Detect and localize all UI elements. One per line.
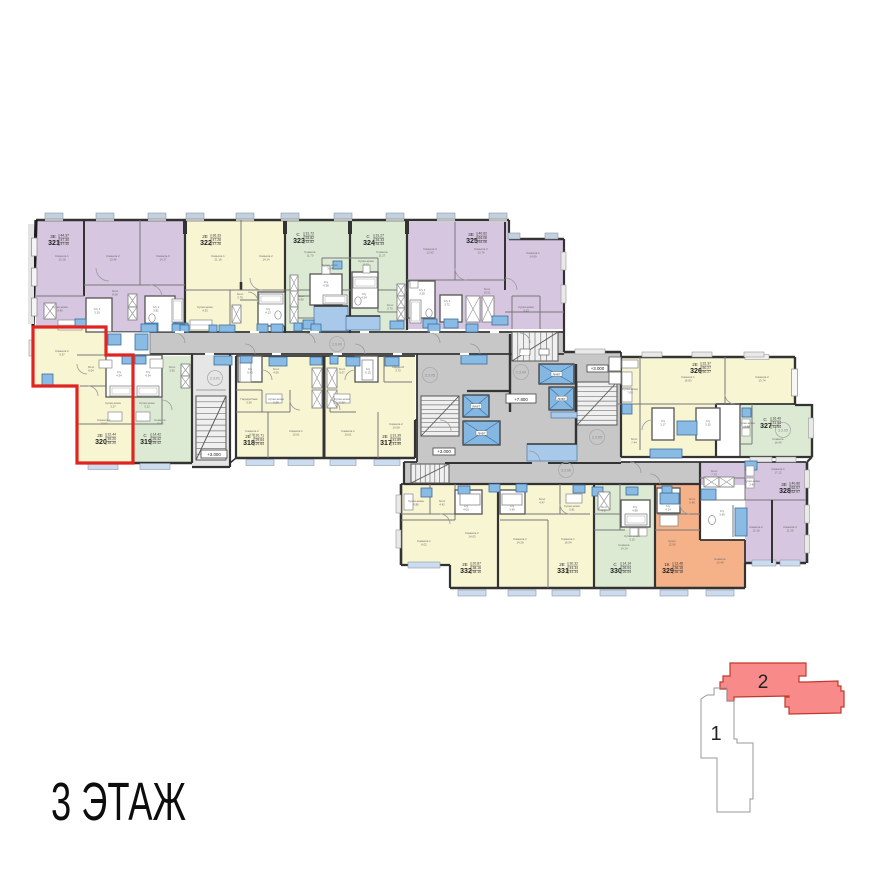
svg-text:10.61: 10.61 bbox=[345, 433, 352, 437]
svg-text:8.06: 8.06 bbox=[112, 293, 118, 297]
svg-text:6.45: 6.45 bbox=[57, 309, 63, 313]
svg-text:4.00: 4.00 bbox=[463, 508, 469, 512]
svg-text:4.34: 4.34 bbox=[116, 374, 122, 378]
svg-text:3.72: 3.72 bbox=[444, 303, 450, 307]
svg-text:322: 322 bbox=[200, 240, 212, 247]
svg-text:5.07: 5.07 bbox=[339, 371, 345, 375]
svg-text:4.34: 4.34 bbox=[145, 374, 151, 378]
svg-text:62.07: 62.07 bbox=[792, 490, 801, 494]
svg-text:3.19: 3.19 bbox=[94, 311, 100, 315]
svg-text:47.26: 47.26 bbox=[213, 242, 222, 246]
svg-text:318: 318 bbox=[243, 440, 255, 447]
svg-text:3.96: 3.96 bbox=[509, 508, 515, 512]
svg-text:4.24: 4.24 bbox=[361, 296, 367, 300]
svg-text:325: 325 bbox=[466, 238, 478, 245]
svg-text:16.04: 16.04 bbox=[565, 541, 572, 545]
svg-text:4.48: 4.48 bbox=[744, 425, 750, 429]
svg-text:3.79: 3.79 bbox=[237, 296, 243, 300]
svg-text:14.03: 14.03 bbox=[469, 535, 476, 539]
svg-text:+3.000: +3.000 bbox=[437, 449, 451, 454]
svg-text:39.20: 39.20 bbox=[108, 441, 117, 445]
svg-text:ЛИФТ: ЛИФТ bbox=[557, 397, 565, 401]
svg-text:3.15: 3.15 bbox=[629, 538, 635, 542]
svg-text:10.51: 10.51 bbox=[484, 291, 491, 295]
svg-text:2Е: 2Е bbox=[97, 433, 103, 438]
svg-text:25.42: 25.42 bbox=[153, 441, 162, 445]
svg-text:2.3.05: 2.3.05 bbox=[425, 374, 435, 378]
svg-text:2Е: 2Е bbox=[462, 562, 468, 567]
svg-text:11.27: 11.27 bbox=[379, 254, 386, 258]
svg-text:6.15: 6.15 bbox=[365, 371, 371, 375]
svg-text:29.64: 29.64 bbox=[256, 442, 265, 446]
svg-text:31.54: 31.54 bbox=[773, 425, 782, 429]
svg-text:3.15: 3.15 bbox=[705, 423, 711, 427]
svg-text:9.37: 9.37 bbox=[59, 353, 65, 357]
svg-text:4.33: 4.33 bbox=[202, 309, 208, 313]
svg-text:5.40: 5.40 bbox=[247, 371, 253, 375]
svg-text:324: 324 bbox=[363, 240, 375, 247]
svg-text:2: 2 bbox=[758, 672, 769, 693]
svg-text:26.04: 26.04 bbox=[623, 570, 632, 574]
svg-text:10.61: 10.61 bbox=[293, 433, 300, 437]
svg-text:2.9.00: 2.9.00 bbox=[332, 343, 342, 347]
svg-text:ЛИФТ: ЛИФТ bbox=[472, 404, 480, 408]
svg-text:5.28: 5.28 bbox=[419, 292, 425, 296]
svg-text:33.82: 33.82 bbox=[306, 240, 315, 244]
svg-text:3.36: 3.36 bbox=[246, 401, 252, 405]
svg-text:4.24: 4.24 bbox=[665, 508, 671, 512]
svg-text:7.79: 7.79 bbox=[711, 473, 717, 477]
svg-text:13.76: 13.76 bbox=[478, 251, 485, 255]
svg-text:3.48: 3.48 bbox=[749, 483, 755, 487]
svg-text:+3.000: +3.000 bbox=[207, 452, 221, 457]
svg-text:17.12: 17.12 bbox=[775, 471, 782, 475]
svg-text:3.12: 3.12 bbox=[363, 263, 369, 267]
svg-text:12.93: 12.93 bbox=[427, 251, 434, 255]
svg-text:13.48: 13.48 bbox=[717, 561, 724, 565]
svg-text:12.16: 12.16 bbox=[753, 529, 760, 533]
svg-text:323: 323 bbox=[293, 238, 305, 245]
svg-text:1: 1 bbox=[710, 723, 721, 745]
svg-text:3.17: 3.17 bbox=[660, 423, 666, 427]
svg-text:4.80: 4.80 bbox=[298, 298, 304, 302]
svg-text:2.3.01: 2.3.01 bbox=[210, 377, 220, 381]
svg-text:16.40: 16.40 bbox=[775, 441, 782, 445]
svg-text:16.83: 16.83 bbox=[685, 379, 692, 383]
svg-text:3Е: 3Е bbox=[468, 232, 474, 237]
svg-text:14.14: 14.14 bbox=[621, 547, 628, 551]
svg-text:47.30: 47.30 bbox=[61, 242, 70, 246]
svg-text:1К: 1К bbox=[664, 562, 670, 567]
svg-text:3.04: 3.04 bbox=[327, 267, 333, 271]
svg-text:3Е: 3Е bbox=[50, 234, 56, 239]
svg-text:3.13: 3.13 bbox=[523, 309, 529, 313]
svg-text:2Е: 2Е bbox=[382, 434, 388, 439]
svg-text:21.18: 21.18 bbox=[215, 258, 222, 262]
svg-text:5.48: 5.48 bbox=[689, 501, 695, 505]
svg-text:3Е: 3Е bbox=[781, 482, 787, 487]
svg-text:7.44: 7.44 bbox=[631, 441, 637, 445]
svg-text:ЛИФТ: ЛИФТ bbox=[552, 372, 560, 376]
svg-text:319: 319 bbox=[140, 439, 152, 446]
svg-text:+7.800: +7.800 bbox=[514, 397, 528, 402]
svg-text:330: 330 bbox=[610, 568, 622, 575]
svg-text:3.3.06: 3.3.06 bbox=[561, 469, 571, 473]
svg-text:3.55: 3.55 bbox=[169, 369, 175, 373]
svg-text:2.3.05: 2.3.05 bbox=[592, 436, 602, 440]
svg-text:317: 317 bbox=[380, 440, 392, 447]
svg-text:4.47: 4.47 bbox=[539, 501, 545, 505]
svg-text:41.89: 41.89 bbox=[393, 442, 402, 446]
svg-text:2Е: 2Е bbox=[202, 234, 208, 239]
svg-text:6.86: 6.86 bbox=[413, 503, 419, 507]
svg-text:14.99: 14.99 bbox=[530, 255, 537, 259]
svg-text:328: 328 bbox=[779, 488, 791, 495]
svg-text:3.12: 3.12 bbox=[144, 405, 150, 409]
svg-text:327: 327 bbox=[760, 423, 772, 430]
svg-text:329: 329 bbox=[662, 568, 674, 575]
svg-text:14.42: 14.42 bbox=[157, 422, 164, 426]
svg-text:4.42: 4.42 bbox=[439, 503, 445, 507]
svg-text:3 ЭТАЖ: 3 ЭТАЖ bbox=[51, 772, 186, 832]
svg-text:13.07: 13.07 bbox=[101, 422, 108, 426]
svg-text:34.33: 34.33 bbox=[376, 242, 385, 246]
svg-text:4.98: 4.98 bbox=[632, 509, 638, 513]
svg-text:332: 332 bbox=[460, 568, 472, 575]
svg-text:3.70: 3.70 bbox=[395, 369, 401, 373]
svg-text:11.39: 11.39 bbox=[787, 529, 794, 533]
svg-text:2Е: 2Е bbox=[559, 562, 565, 567]
svg-text:14.14: 14.14 bbox=[263, 258, 270, 262]
svg-text:3.96: 3.96 bbox=[719, 513, 725, 517]
svg-text:13.18: 13.18 bbox=[59, 258, 66, 262]
svg-text:331: 331 bbox=[557, 568, 569, 575]
svg-text:10.58: 10.58 bbox=[393, 426, 400, 430]
svg-text:5.81: 5.81 bbox=[569, 508, 575, 512]
svg-text:14.28: 14.28 bbox=[517, 541, 524, 545]
svg-text:8.02: 8.02 bbox=[421, 543, 427, 547]
svg-text:3.3.05: 3.3.05 bbox=[778, 429, 788, 433]
svg-text:12.90: 12.90 bbox=[669, 543, 676, 547]
svg-text:ЛИФТ: ЛИФТ bbox=[477, 431, 485, 435]
svg-text:11.70: 11.70 bbox=[307, 254, 314, 258]
svg-text:4.28: 4.28 bbox=[323, 284, 329, 288]
svg-text:2Е: 2Е bbox=[692, 362, 698, 367]
svg-text:9.90: 9.90 bbox=[249, 433, 255, 437]
svg-text:13.74: 13.74 bbox=[759, 379, 766, 383]
svg-text:50.27: 50.27 bbox=[703, 370, 712, 374]
svg-text:3.81: 3.81 bbox=[153, 309, 159, 313]
svg-text:4.59: 4.59 bbox=[273, 371, 279, 375]
svg-text:44.34: 44.34 bbox=[570, 570, 579, 574]
svg-text:64.06: 64.06 bbox=[479, 240, 488, 244]
svg-text:6.04: 6.04 bbox=[88, 369, 94, 373]
svg-text:7.09: 7.09 bbox=[627, 391, 633, 395]
svg-text:320: 320 bbox=[95, 439, 107, 446]
svg-text:+3.000: +3.000 bbox=[591, 366, 605, 371]
svg-text:4.13: 4.13 bbox=[265, 311, 271, 315]
svg-text:5.70: 5.70 bbox=[387, 307, 393, 311]
svg-text:38.16: 38.16 bbox=[473, 570, 482, 574]
svg-text:13.46: 13.46 bbox=[110, 258, 117, 262]
svg-text:14.17: 14.17 bbox=[160, 258, 167, 262]
svg-text:5.58: 5.58 bbox=[339, 401, 345, 405]
svg-text:3.27: 3.27 bbox=[110, 405, 116, 409]
svg-text:36.18: 36.18 bbox=[675, 570, 684, 574]
svg-text:321: 321 bbox=[48, 240, 60, 247]
svg-text:2.3.04: 2.3.04 bbox=[516, 371, 526, 375]
svg-text:4.37: 4.37 bbox=[601, 509, 607, 513]
svg-text:5.58: 5.58 bbox=[273, 401, 279, 405]
